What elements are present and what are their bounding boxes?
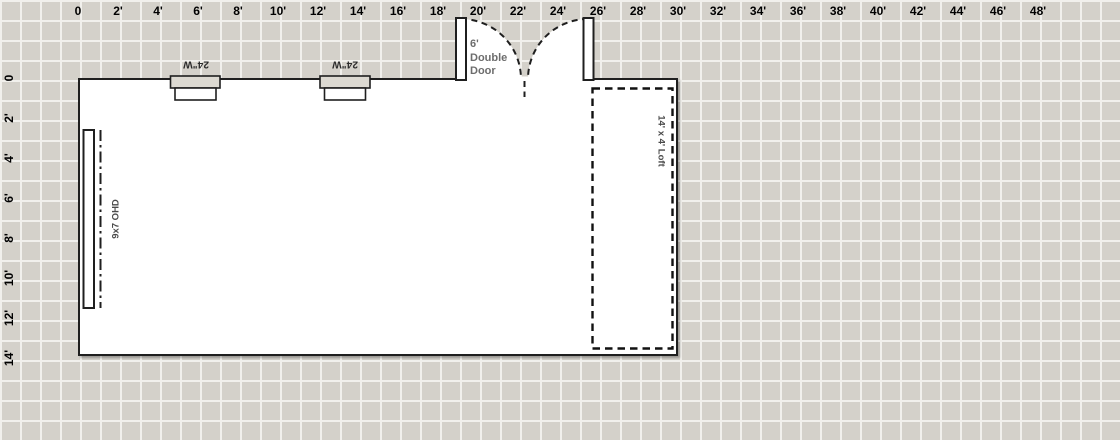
- double-door-label: 6' Double Door: [470, 38, 507, 79]
- window-1[interactable]: [171, 76, 221, 100]
- window-2-label: 24"W: [332, 59, 358, 70]
- door-leaf-left: [456, 18, 466, 80]
- window-2[interactable]: [320, 76, 370, 100]
- window-frame: [320, 76, 370, 88]
- window-1-label: 24"W: [182, 59, 208, 70]
- overhead-door-panel: [84, 130, 95, 308]
- overhead-door-label: 9x7 OHD: [111, 199, 122, 239]
- window-frame: [171, 76, 221, 88]
- window-sill: [175, 88, 216, 100]
- door-leaf-right: [584, 18, 594, 80]
- loft-label: 14' x 4' Loft: [656, 115, 667, 167]
- window-sill: [325, 88, 366, 100]
- design-canvas[interactable]: 02'4'6'8'10'12'14'16'18'20'22'24'26'28'3…: [0, 0, 1120, 440]
- overhead-door[interactable]: [84, 130, 101, 308]
- floorplan-overlay: [0, 0, 1120, 440]
